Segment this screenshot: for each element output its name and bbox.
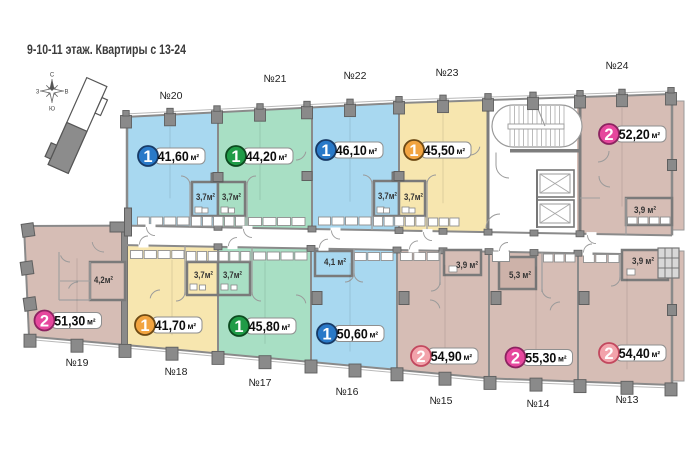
svg-text:2: 2 [511,349,520,367]
svg-text:52,20: 52,20 [619,126,650,142]
svg-text:1: 1 [140,317,149,335]
svg-text:м²: м² [652,131,661,140]
svg-text:45,80: 45,80 [249,318,280,334]
svg-text:№21: №21 [264,73,287,85]
svg-text:3,7м²: 3,7м² [404,192,423,203]
svg-text:2: 2 [604,126,613,144]
svg-text:№18: №18 [165,366,188,378]
svg-text:№13: №13 [616,394,639,406]
svg-text:3,9 м²: 3,9 м² [632,256,654,267]
svg-text:3,7м²: 3,7м² [196,192,215,203]
svg-text:3,9 м²: 3,9 м² [456,260,478,271]
svg-text:55,30: 55,30 [525,350,556,366]
svg-text:1: 1 [321,142,330,160]
svg-text:В: В [64,90,68,96]
svg-text:3,7м²: 3,7м² [378,191,397,202]
svg-text:№23: №23 [436,67,459,79]
svg-text:м²: м² [282,323,291,332]
svg-text:54,90: 54,90 [431,348,462,364]
svg-text:м²: м² [652,350,661,359]
svg-text:9-10-11 этаж. Квартиры с 13-24: 9-10-11 этаж. Квартиры с 13-24 [27,42,186,57]
svg-text:1: 1 [234,318,243,336]
svg-text:м²: м² [558,355,567,364]
svg-text:1: 1 [143,148,152,166]
svg-text:41,60: 41,60 [158,148,189,164]
svg-text:44,20: 44,20 [246,148,277,164]
svg-text:№15: №15 [430,395,453,407]
svg-text:54,40: 54,40 [619,345,650,361]
svg-text:м²: м² [191,153,200,162]
svg-text:5,3 м²: 5,3 м² [509,270,531,281]
svg-text:1: 1 [322,325,331,343]
svg-text:2: 2 [604,345,613,363]
svg-text:1: 1 [409,142,418,160]
svg-text:м²: м² [188,322,197,331]
svg-text:З: З [36,90,40,96]
svg-text:м²: м² [370,331,379,340]
svg-text:45,50: 45,50 [424,142,455,158]
svg-text:41,70: 41,70 [155,317,186,333]
svg-text:4,1 м²: 4,1 м² [324,257,346,268]
svg-text:3,7м²: 3,7м² [223,270,242,281]
svg-text:№16: №16 [336,386,359,398]
svg-text:м²: м² [457,147,466,156]
svg-text:2: 2 [416,348,425,366]
svg-text:46,10: 46,10 [336,142,367,158]
svg-text:50,60: 50,60 [337,326,368,342]
svg-text:№24: №24 [606,60,629,72]
svg-text:№17: №17 [249,377,272,389]
svg-text:м²: м² [369,147,378,156]
svg-text:3,9 м²: 3,9 м² [634,205,656,216]
svg-text:51,30: 51,30 [54,313,85,329]
svg-text:1: 1 [231,148,240,166]
svg-text:3,7м²: 3,7м² [222,192,241,203]
svg-text:С: С [50,73,55,79]
svg-text:№20: №20 [160,90,183,102]
svg-text:№19: №19 [66,357,89,369]
svg-text:м²: м² [87,318,96,327]
svg-text:м²: м² [464,353,473,362]
svg-text:3,7м²: 3,7м² [194,270,213,281]
svg-text:Ю: Ю [49,107,55,113]
svg-text:№22: №22 [344,70,367,82]
svg-text:2: 2 [40,312,49,330]
svg-text:4,2м²: 4,2м² [94,275,113,286]
svg-text:м²: м² [279,153,288,162]
svg-text:№14: №14 [527,398,550,410]
